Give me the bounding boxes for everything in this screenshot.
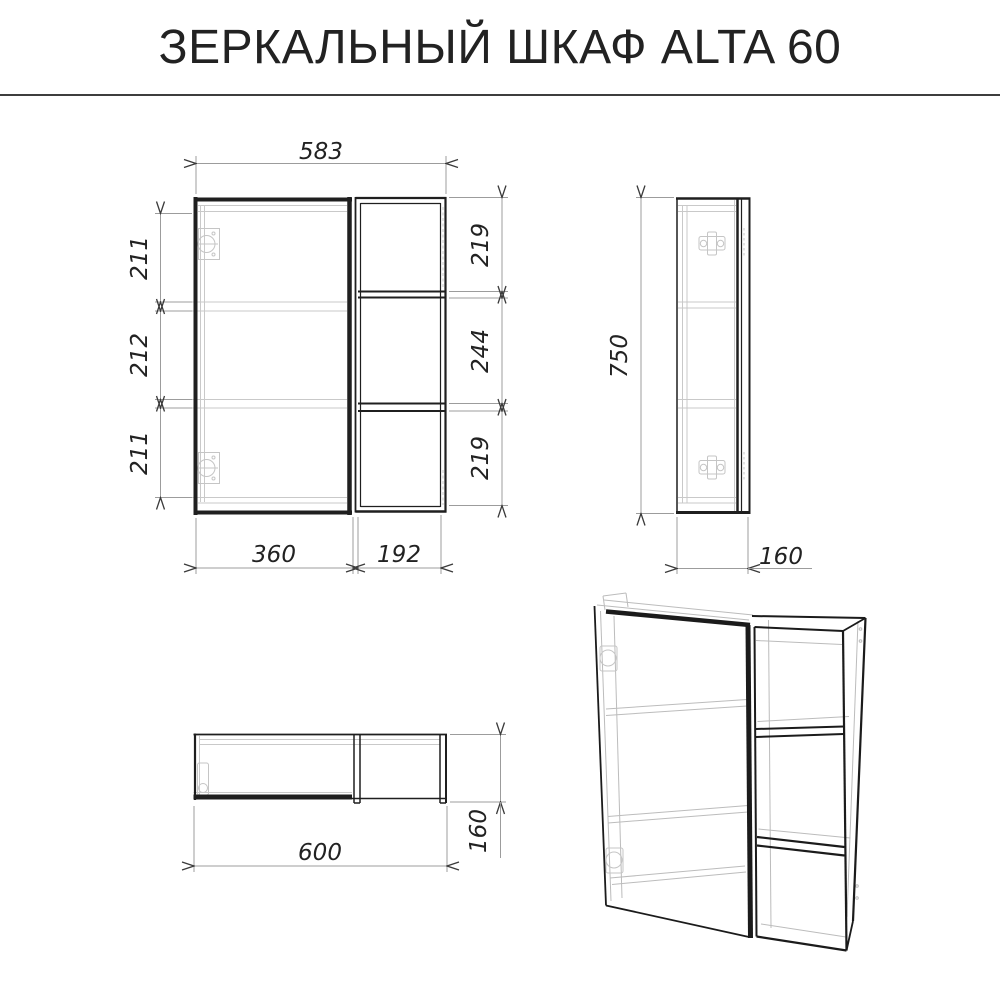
dim-bottom-depth: 160 <box>450 735 506 859</box>
dim-front-left: 211 212 211 <box>127 214 192 498</box>
dim-label: 583 <box>299 139 343 165</box>
iso-outline <box>595 606 866 951</box>
hinge-icon <box>195 453 220 484</box>
dim-label: 160 <box>759 544 803 570</box>
front-view: 583 211 212 211 <box>127 139 508 574</box>
dim-label: 244 <box>468 329 494 373</box>
side-view: 750 160 <box>607 198 812 575</box>
dim-side-height: 750 <box>607 198 674 514</box>
technical-drawing: 583 211 212 211 <box>0 0 1000 1000</box>
dim-side-depth: 160 <box>677 517 812 574</box>
dim-label: 600 <box>298 840 342 866</box>
drawing-sheet: ЗЕРКАЛЬНЫЙ ШКАФ ALTA 60 <box>0 0 1000 1000</box>
dim-front-right: 219 244 219 <box>449 198 508 506</box>
dim-label: 160 <box>466 809 492 853</box>
dim-label: 212 <box>127 333 153 377</box>
dim-label: 211 <box>127 431 153 475</box>
dim-front-bottom: 360 192 <box>196 515 441 574</box>
dim-front-width: 583 <box>196 139 446 194</box>
bottom-hidden-lines <box>194 736 441 795</box>
dim-label: 211 <box>127 236 153 280</box>
front-shelf-unit <box>356 197 447 513</box>
dim-label: 360 <box>252 542 296 568</box>
dim-label: 750 <box>607 334 633 378</box>
isometric-view <box>595 593 866 951</box>
front-door-outline <box>194 197 353 515</box>
dim-label: 219 <box>468 436 494 480</box>
dim-bottom-width: 600 <box>194 806 447 872</box>
dim-label: 192 <box>377 542 421 568</box>
hinge-icon <box>195 229 220 260</box>
dim-label: 219 <box>468 223 494 267</box>
iso-hidden-lines <box>597 593 862 937</box>
bottom-view: 600 160 <box>194 734 507 873</box>
